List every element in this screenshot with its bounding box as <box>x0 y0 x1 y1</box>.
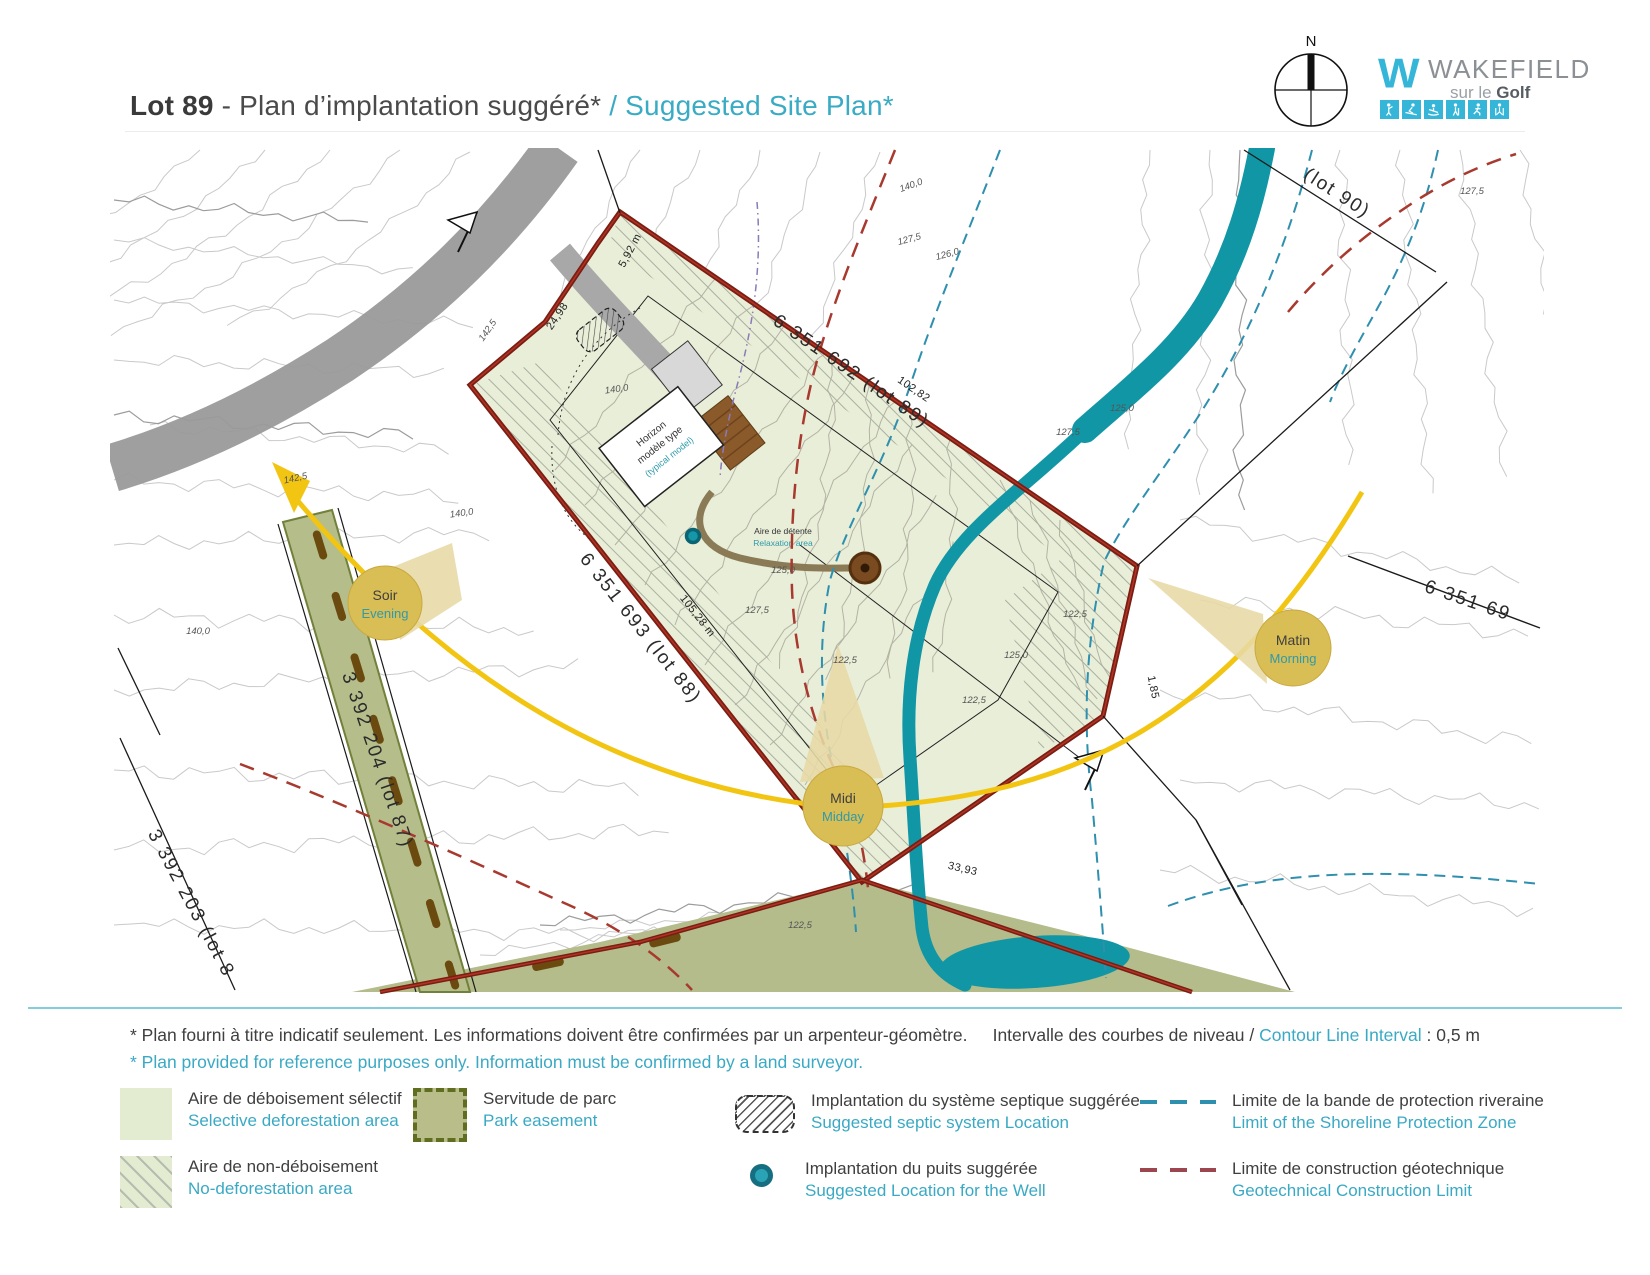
contour-elevation-label: 122,5 <box>788 920 812 931</box>
no-deforestation-swatch <box>120 1156 172 1208</box>
runner-icon <box>1468 100 1487 119</box>
page-title: Lot 89- Plan d’implantation suggéré*/ Su… <box>130 90 894 122</box>
park-easement-swatch <box>413 1088 467 1142</box>
contour-elevation-label: 140,0 <box>898 176 925 195</box>
logo-activity-icons <box>1380 100 1509 119</box>
contour-interval-note: Intervalle des courbes de niveau / Conto… <box>993 1025 1480 1046</box>
legend-item-septic-system: Implantation du système septique suggéré… <box>735 1090 1140 1134</box>
well-marker <box>687 530 700 543</box>
evening-label-en: Evening <box>362 606 409 621</box>
contour-elevation-label: 142,5 <box>477 317 500 343</box>
midday-label-fr: Midi <box>830 790 856 806</box>
contour-elevation-label: 125,0 <box>1110 403 1134 414</box>
measurement-label: 33,93 <box>947 860 979 878</box>
measurement-label: 1,85 <box>1145 675 1162 700</box>
sun-marker-midday: Midi Midday <box>803 766 883 846</box>
contour-elevation-label: 140,0 <box>449 506 475 520</box>
evening-label-fr: Soir <box>373 587 398 603</box>
sun-marker-morning: Matin Morning <box>1255 610 1331 686</box>
site-plan-map: Horizon modèle type (typical model) Aire… <box>110 148 1544 994</box>
contour-elevation-label: 127,5 <box>896 231 923 248</box>
golf-road <box>112 148 558 468</box>
hiker-icon <box>1446 100 1465 119</box>
right-lot-label: 6 351 69 <box>1422 576 1514 625</box>
paddler-icon <box>1424 100 1443 119</box>
footnote-english: * Plan provided for reference purposes o… <box>130 1052 863 1073</box>
contour-elevation-label: 122,5 <box>962 695 986 706</box>
footnote-french: * Plan fourni à titre indicatif seulemen… <box>130 1025 968 1046</box>
compass-rose: N <box>1266 30 1358 136</box>
legend-item-park-easement: Servitude de parcPark easement <box>413 1088 616 1142</box>
contour-elevation-label: 140,0 <box>186 626 210 637</box>
midday-label-en: Midday <box>822 809 864 824</box>
compass-north-label: N <box>1306 33 1317 50</box>
relaxation-area-label-fr: Aire de détente <box>754 526 812 536</box>
legend-item-geotechnical-limit: Limite de construction géotechniqueGeote… <box>1140 1158 1504 1202</box>
legend-item-no-deforestation: Aire de non-déboisementNo-deforestation … <box>120 1156 378 1208</box>
legend-item-shoreline-protection: Limite de la bande de protection riverai… <box>1140 1090 1544 1134</box>
lot-90-label: (lot 90) <box>1300 164 1374 223</box>
footer-divider <box>28 1007 1622 1009</box>
logo-brand-name: WAKEFIELD <box>1428 54 1591 85</box>
sun-marker-evening: Soir Evening <box>348 566 422 640</box>
morning-label-en: Morning <box>1270 651 1317 666</box>
contour-elevation-label: 127,5 <box>1056 427 1080 438</box>
contour-elevation-label: 125,0 <box>1004 650 1028 661</box>
xc-skier-icon <box>1490 100 1509 119</box>
contour-elevation-label: 122,5 <box>1063 609 1087 620</box>
lot-number: Lot 89 <box>130 90 214 121</box>
golfer-icon <box>1380 100 1399 119</box>
contour-elevation-label: 122,5 <box>833 655 857 666</box>
compass-north-needle <box>1308 54 1315 90</box>
selective-deforestation-swatch <box>120 1088 172 1140</box>
legend-item-selective-deforestation: Aire de déboisement sélectifSelective de… <box>120 1088 402 1140</box>
contour-elevation-label: 125,0 <box>771 565 795 576</box>
title-english: / Suggested Site Plan* <box>609 90 894 121</box>
contour-elevation-label: 127,5 <box>1460 186 1484 197</box>
contour-elevation-label: 127,5 <box>745 605 769 616</box>
title-french: - Plan d’implantation suggéré* <box>222 90 602 121</box>
geotechnical-dash-swatch <box>1140 1168 1216 1172</box>
wakefield-logo: W WAKEFIELD sur le Golf <box>1378 52 1578 122</box>
legend-item-well: Implantation du puits suggéréeSuggested … <box>735 1158 1046 1202</box>
skier-icon <box>1402 100 1421 119</box>
morning-label-fr: Matin <box>1276 632 1310 648</box>
relaxation-area-label-en: Relaxation area <box>753 538 813 548</box>
logo-monogram: W <box>1378 53 1420 95</box>
septic-system-swatch <box>735 1095 795 1133</box>
shoreline-dash-swatch <box>1140 1100 1216 1104</box>
well-swatch <box>750 1164 773 1187</box>
